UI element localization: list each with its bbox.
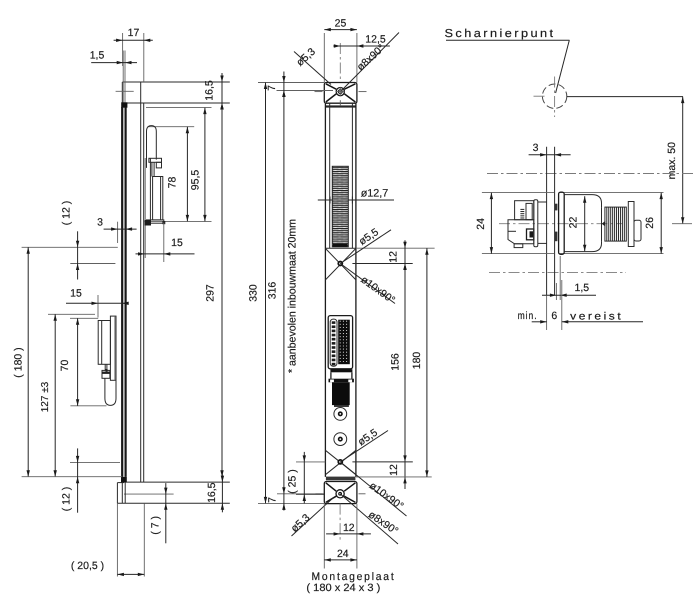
svg-text:330: 330	[248, 284, 260, 302]
svg-text:24: 24	[475, 218, 487, 230]
svg-text:ø8x90°: ø8x90°	[366, 509, 400, 538]
svg-text:16,5: 16,5	[203, 80, 215, 101]
svg-text:( 25 ): ( 25 )	[287, 469, 299, 494]
svg-text:24: 24	[337, 548, 349, 560]
svg-text:127 ±3: 127 ±3	[40, 381, 51, 412]
svg-text:1,5: 1,5	[90, 49, 105, 61]
svg-text:6: 6	[551, 310, 557, 322]
svg-text:ø10x90°: ø10x90°	[358, 274, 397, 307]
svg-text:* aanbevolen inbouwmaat 20mm: * aanbevolen inbouwmaat 20mm	[287, 219, 299, 373]
svg-text:( 12 ): ( 12 )	[61, 201, 73, 226]
svg-text:15: 15	[70, 288, 82, 300]
svg-text:( 12 ): ( 12 )	[61, 487, 73, 512]
svg-text:22: 22	[568, 217, 580, 229]
svg-text:Montageplaat: Montageplaat	[312, 571, 396, 583]
svg-text:17: 17	[128, 27, 140, 39]
svg-text:3: 3	[97, 216, 103, 228]
svg-text:1,5: 1,5	[574, 282, 589, 294]
svg-text:15: 15	[171, 237, 183, 249]
svg-text:316: 316	[267, 282, 279, 300]
svg-text:min.: min.	[518, 310, 538, 322]
svg-text:16,5: 16,5	[206, 482, 218, 503]
svg-text:70: 70	[59, 360, 71, 372]
svg-text:7: 7	[266, 497, 278, 503]
svg-text:25: 25	[335, 18, 347, 30]
svg-text:Scharnierpunt: Scharnierpunt	[445, 28, 556, 40]
svg-text:12,5: 12,5	[365, 34, 386, 46]
svg-text:95,5: 95,5	[190, 170, 202, 191]
svg-text:ø5,3: ø5,3	[294, 46, 318, 69]
svg-text:ø5,3: ø5,3	[289, 512, 313, 535]
svg-text:297: 297	[205, 284, 217, 302]
svg-text:180: 180	[411, 352, 423, 370]
svg-text:vereist: vereist	[570, 310, 623, 322]
svg-text:( 180 x 24 x 3 ): ( 180 x 24 x 3 )	[306, 582, 380, 594]
svg-text:ø8x90°: ø8x90°	[355, 42, 388, 73]
svg-text:ø5,5: ø5,5	[356, 427, 380, 449]
svg-text:12: 12	[388, 464, 400, 476]
svg-text:( 180 ): ( 180 )	[13, 347, 25, 377]
svg-text:7: 7	[266, 85, 278, 91]
svg-text:ø12,7: ø12,7	[361, 188, 389, 200]
svg-text:156: 156	[390, 353, 402, 371]
svg-text:12: 12	[343, 522, 355, 534]
svg-text:( 20,5 ): ( 20,5 )	[71, 560, 104, 572]
svg-text:( 7 ): ( 7 )	[150, 516, 162, 535]
svg-text:12: 12	[388, 251, 400, 263]
svg-text:26: 26	[644, 217, 656, 229]
svg-text:78: 78	[166, 177, 178, 189]
svg-text:3: 3	[533, 142, 539, 154]
